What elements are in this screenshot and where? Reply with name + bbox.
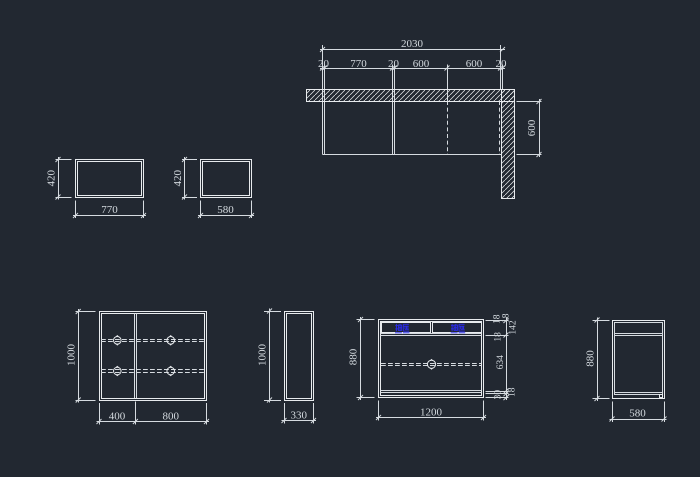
svg-text:580: 580 (217, 204, 234, 216)
svg-text:420: 420 (172, 169, 184, 186)
svg-text:634: 634 (496, 355, 506, 370)
svg-text:800: 800 (162, 411, 179, 423)
svg-text:400: 400 (109, 411, 126, 423)
svg-text:330: 330 (291, 410, 308, 422)
svg-text:1200: 1200 (420, 407, 443, 419)
svg-text:600: 600 (413, 58, 430, 70)
svg-text:1000: 1000 (65, 344, 77, 367)
svg-text:18: 18 (508, 387, 518, 397)
svg-text:1000: 1000 (257, 344, 269, 367)
svg-text:30: 30 (494, 390, 504, 400)
svg-text:880: 880 (585, 350, 597, 367)
svg-text:580: 580 (629, 408, 646, 420)
svg-text:20: 20 (388, 58, 400, 70)
svg-text:770: 770 (101, 204, 118, 216)
svg-text:600: 600 (466, 58, 483, 70)
svg-text:600: 600 (526, 119, 538, 136)
svg-text:420: 420 (45, 169, 57, 186)
svg-text:20: 20 (496, 58, 508, 70)
svg-text:770: 770 (350, 58, 367, 70)
svg-text:2030: 2030 (401, 38, 424, 50)
svg-text:880: 880 (348, 348, 360, 365)
svg-text:18: 18 (494, 332, 504, 342)
svg-text:20: 20 (318, 58, 330, 70)
svg-text:142: 142 (508, 320, 518, 335)
